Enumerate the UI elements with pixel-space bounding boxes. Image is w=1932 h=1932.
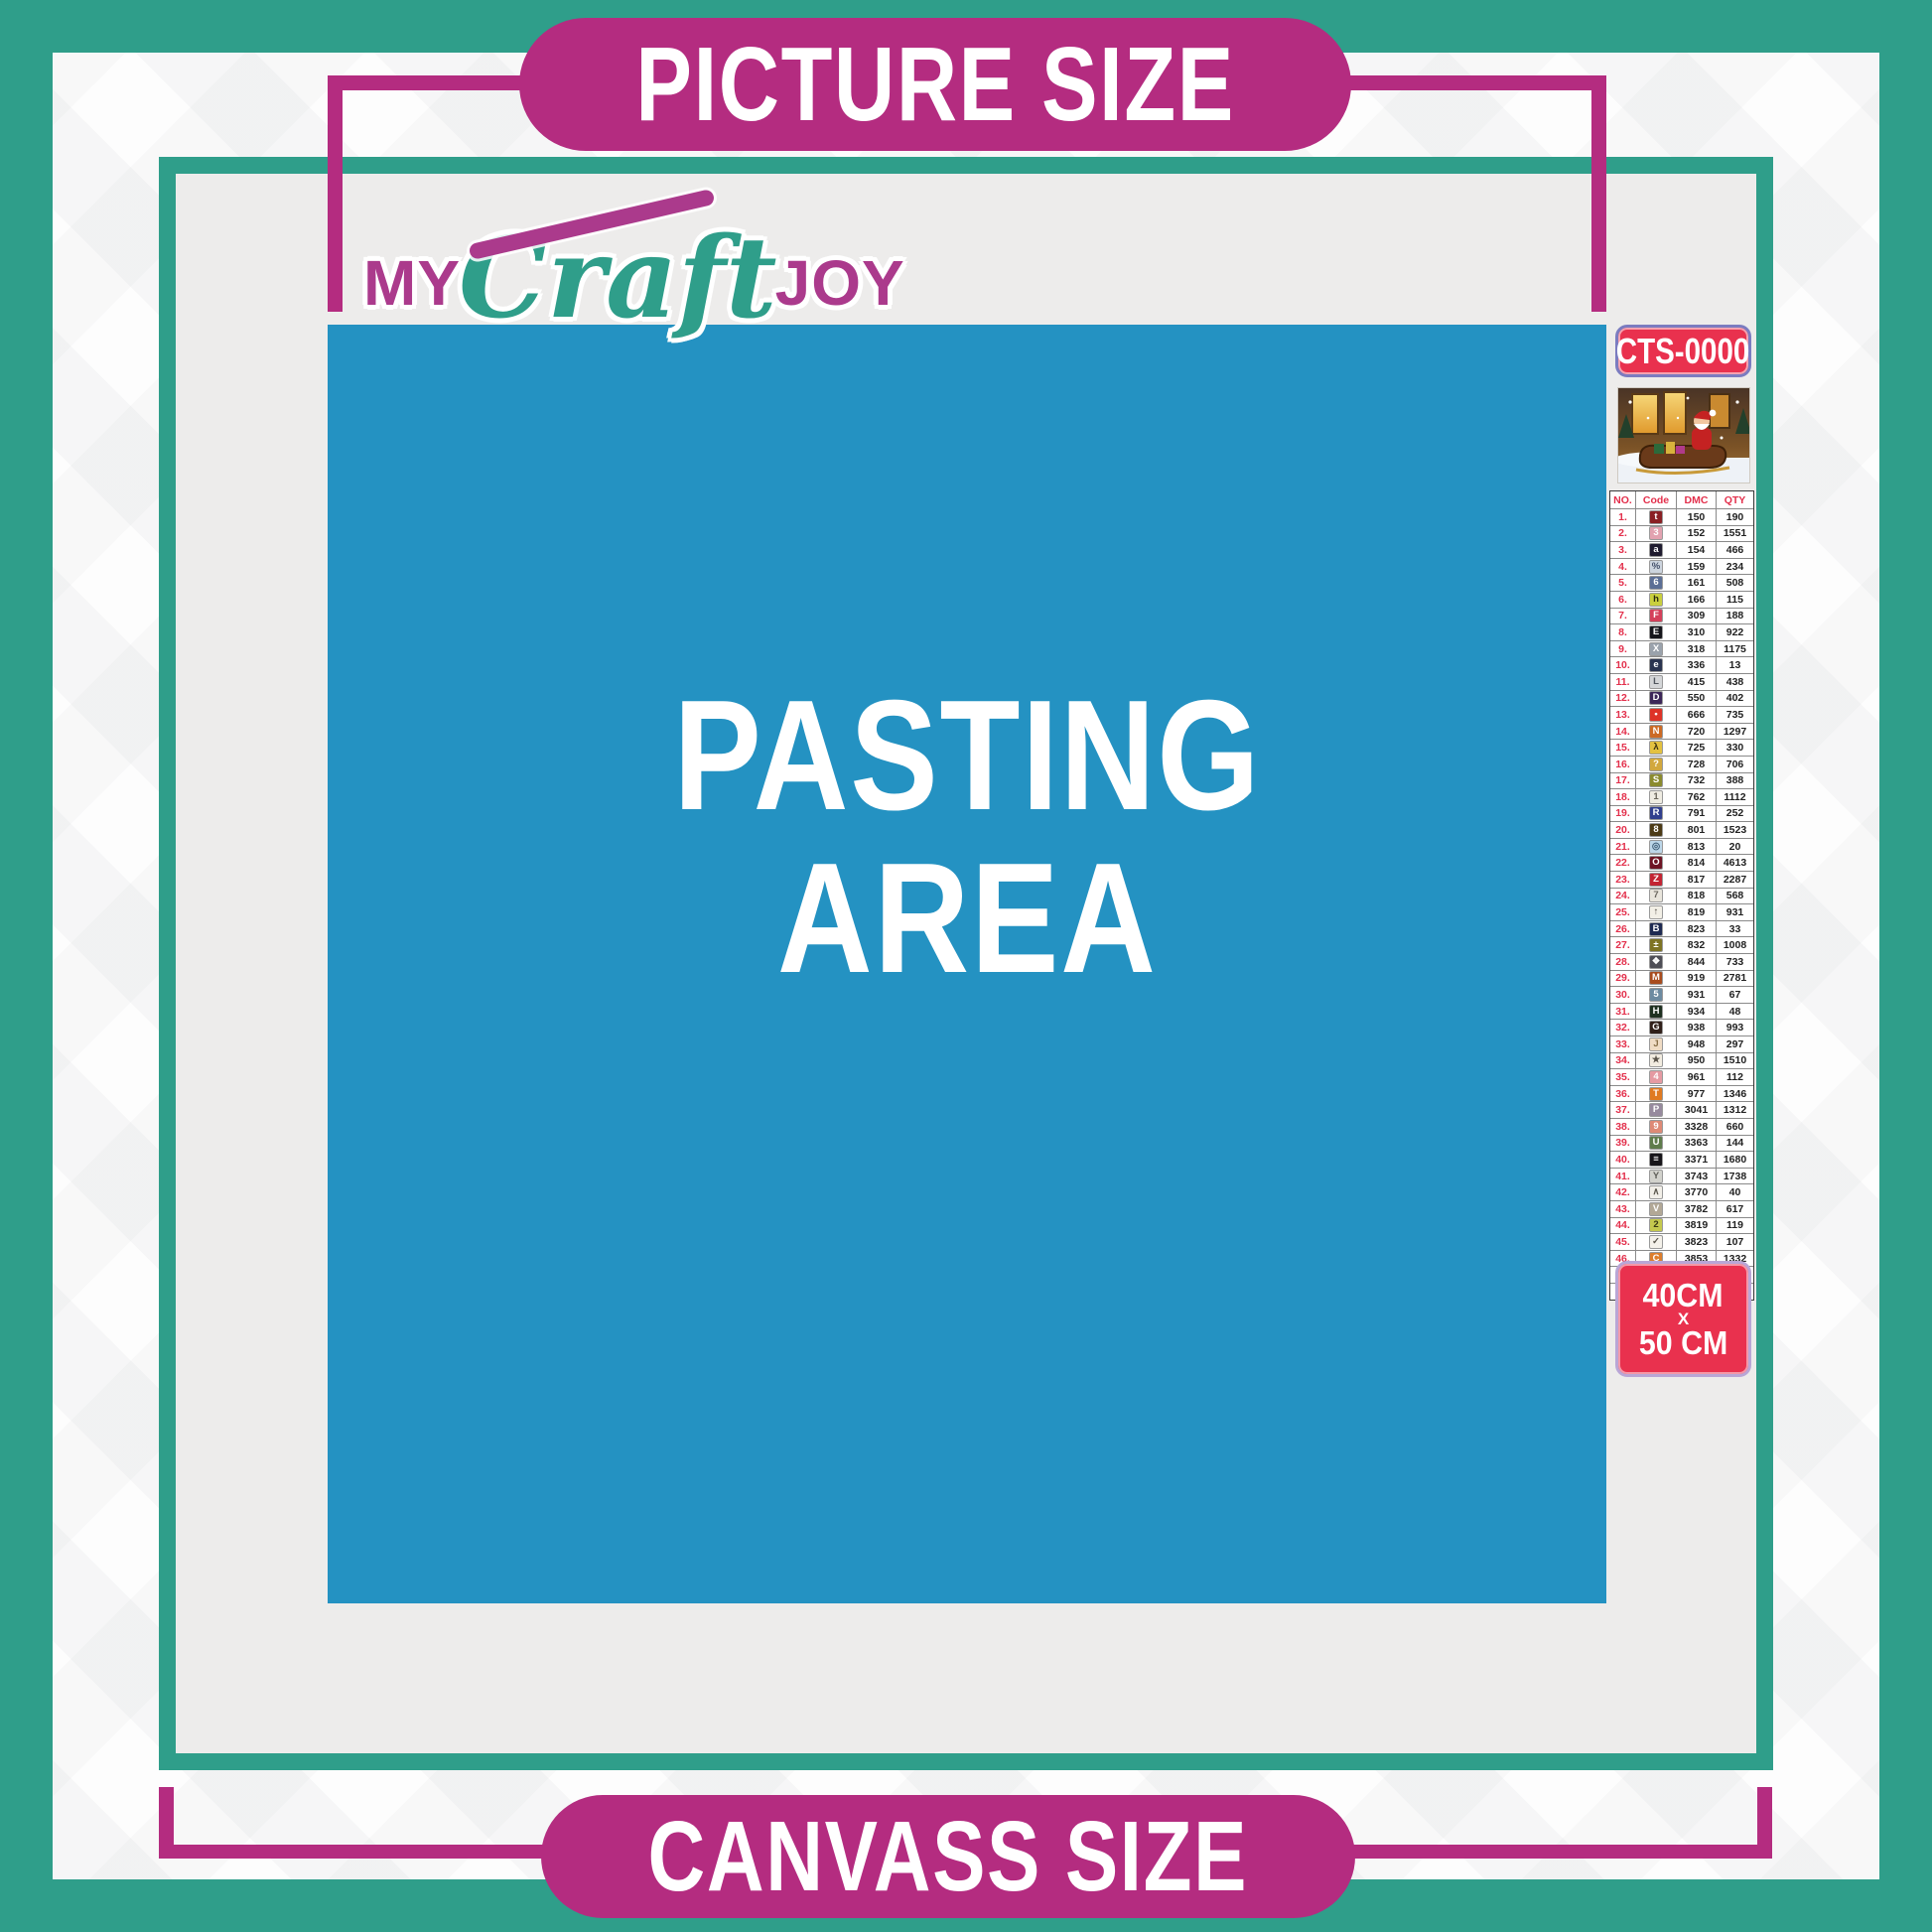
legend-row-45: 45.✓3823107 xyxy=(1610,1233,1753,1250)
legend-row-1: 1.t150190 xyxy=(1610,508,1753,525)
color-chip: ≡ xyxy=(1649,1153,1663,1167)
legend-cell-code: T xyxy=(1636,1086,1677,1102)
legend-cell-code: ↑ xyxy=(1636,904,1677,920)
color-chip: 3 xyxy=(1649,526,1663,540)
legend-cell-no: 36. xyxy=(1610,1086,1636,1102)
color-chip: % xyxy=(1649,560,1663,574)
color-chip: 4 xyxy=(1649,1070,1663,1084)
color-chip: ❖ xyxy=(1649,955,1663,969)
color-chip: X xyxy=(1649,642,1663,656)
legend-cell-dmc: 336 xyxy=(1677,657,1717,673)
legend-cell-no: 25. xyxy=(1610,904,1636,920)
color-chip: 5 xyxy=(1649,988,1663,1002)
color-chip: ✓ xyxy=(1649,1235,1663,1249)
legend-cell-code: 6 xyxy=(1636,575,1677,591)
color-chip: 6 xyxy=(1649,576,1663,590)
legend-row-39: 39.U3363144 xyxy=(1610,1135,1753,1152)
legend-cell-dmc: 948 xyxy=(1677,1036,1717,1052)
legend-cell-dmc: 762 xyxy=(1677,789,1717,805)
legend-row-6: 6.h166115 xyxy=(1610,591,1753,608)
legend-cell-dmc: 725 xyxy=(1677,740,1717,756)
legend-cell-dmc: 817 xyxy=(1677,872,1717,888)
legend-row-21: 21.◎81320 xyxy=(1610,838,1753,855)
legend-cell-no: 24. xyxy=(1610,889,1636,904)
legend-cell-qty: 330 xyxy=(1717,740,1753,756)
legend-row-17: 17.S732388 xyxy=(1610,772,1753,789)
legend-cell-code: S xyxy=(1636,773,1677,789)
legend-cell-no: 41. xyxy=(1610,1169,1636,1184)
color-chip: B xyxy=(1649,922,1663,936)
legend-cell-qty: 112 xyxy=(1717,1069,1753,1085)
size-width: 40CM xyxy=(1643,1280,1724,1311)
legend-row-10: 10.e33613 xyxy=(1610,656,1753,673)
legend-row-42: 42.∧377040 xyxy=(1610,1183,1753,1200)
legend-cell-qty: 119 xyxy=(1717,1218,1753,1234)
legend-header-qty: QTY xyxy=(1717,491,1753,508)
pasting-area-text: PASTING AREA xyxy=(618,674,1317,1001)
pasting-area: PASTING AREA xyxy=(328,325,1606,1603)
legend-cell-code: ✓ xyxy=(1636,1234,1677,1250)
color-chip: ◎ xyxy=(1649,840,1663,854)
legend-cell-code: Z xyxy=(1636,872,1677,888)
legend-cell-dmc: 3819 xyxy=(1677,1218,1717,1234)
legend-cell-qty: 1112 xyxy=(1717,789,1753,805)
legend-cell-qty: 1523 xyxy=(1717,822,1753,838)
legend-cell-no: 7. xyxy=(1610,609,1636,624)
legend-cell-qty: 190 xyxy=(1717,509,1753,525)
legend-row-33: 33.J948297 xyxy=(1610,1035,1753,1052)
legend-cell-dmc: 720 xyxy=(1677,724,1717,740)
legend-cell-code: E xyxy=(1636,624,1677,640)
legend-cell-dmc: 823 xyxy=(1677,921,1717,937)
legend-cell-no: 19. xyxy=(1610,806,1636,822)
color-chip: 7 xyxy=(1649,889,1663,902)
legend-cell-qty: 13 xyxy=(1717,657,1753,673)
legend-cell-no: 1. xyxy=(1610,509,1636,525)
legend-cell-qty: 1312 xyxy=(1717,1102,1753,1118)
legend-cell-code: V xyxy=(1636,1201,1677,1217)
legend-cell-code: 3 xyxy=(1636,526,1677,542)
legend-cell-no: 12. xyxy=(1610,691,1636,707)
legend-header-row: NO. Code DMC QTY xyxy=(1610,491,1753,508)
color-chip: • xyxy=(1649,708,1663,722)
legend-cell-qty: 1297 xyxy=(1717,724,1753,740)
legend-cell-no: 11. xyxy=(1610,674,1636,690)
legend-row-9: 9.X3181175 xyxy=(1610,640,1753,657)
legend-row-28: 28.❖844733 xyxy=(1610,953,1753,970)
legend-cell-dmc: 3328 xyxy=(1677,1119,1717,1135)
legend-cell-dmc: 3782 xyxy=(1677,1201,1717,1217)
color-chip: h xyxy=(1649,593,1663,607)
color-chip: Y xyxy=(1649,1170,1663,1183)
legend-cell-code: 8 xyxy=(1636,822,1677,838)
canvass-size-label: CANVASS SIZE xyxy=(648,1800,1248,1914)
legend-cell-qty: 297 xyxy=(1717,1036,1753,1052)
poster: PASTING AREA PICTURE SIZE CANVASS SIZE M… xyxy=(0,0,1932,1932)
legend-cell-dmc: 310 xyxy=(1677,624,1717,640)
legend-cell-qty: 67 xyxy=(1717,987,1753,1003)
legend-cell-no: 31. xyxy=(1610,1004,1636,1020)
legend-cell-qty: 931 xyxy=(1717,904,1753,920)
legend-cell-dmc: 415 xyxy=(1677,674,1717,690)
picture-size-label: PICTURE SIZE xyxy=(635,25,1234,145)
legend-cell-no: 34. xyxy=(1610,1053,1636,1069)
logo-word-my: MY xyxy=(363,246,461,326)
legend-row-31: 31.H93448 xyxy=(1610,1003,1753,1020)
product-thumbnail xyxy=(1617,387,1750,483)
legend-cell-dmc: 318 xyxy=(1677,641,1717,657)
legend-row-3: 3.a154466 xyxy=(1610,541,1753,558)
legend-cell-no: 4. xyxy=(1610,559,1636,575)
legend-cell-code: F xyxy=(1636,609,1677,624)
legend-cell-no: 20. xyxy=(1610,822,1636,838)
legend-cell-code: ★ xyxy=(1636,1053,1677,1069)
legend-cell-qty: 107 xyxy=(1717,1234,1753,1250)
pasting-line-2: AREA xyxy=(673,837,1261,1000)
legend-cell-dmc: 919 xyxy=(1677,971,1717,987)
legend-cell-code: ± xyxy=(1636,937,1677,953)
color-chip: e xyxy=(1649,658,1663,672)
legend-row-2: 2.31521551 xyxy=(1610,525,1753,542)
legend-row-41: 41.Y37431738 xyxy=(1610,1168,1753,1184)
color-chip: ? xyxy=(1649,758,1663,771)
legend-cell-dmc: 152 xyxy=(1677,526,1717,542)
legend-cell-dmc: 818 xyxy=(1677,889,1717,904)
legend-cell-dmc: 934 xyxy=(1677,1004,1717,1020)
legend-row-30: 30.593167 xyxy=(1610,986,1753,1003)
legend-row-37: 37.P30411312 xyxy=(1610,1101,1753,1118)
legend-cell-code: U xyxy=(1636,1136,1677,1152)
legend-cell-no: 6. xyxy=(1610,592,1636,608)
legend-cell-qty: 252 xyxy=(1717,806,1753,822)
legend-cell-no: 26. xyxy=(1610,921,1636,937)
legend-cell-no: 18. xyxy=(1610,789,1636,805)
legend-row-8: 8.E310922 xyxy=(1610,623,1753,640)
sku-badge: CTS-0000 xyxy=(1615,325,1751,377)
legend-cell-code: X xyxy=(1636,641,1677,657)
legend-cell-qty: 388 xyxy=(1717,773,1753,789)
legend-cell-code: 4 xyxy=(1636,1069,1677,1085)
legend-row-22: 22.O8144613 xyxy=(1610,854,1753,871)
legend-row-7: 7.F309188 xyxy=(1610,608,1753,624)
legend-cell-dmc: 159 xyxy=(1677,559,1717,575)
legend-row-11: 11.L415438 xyxy=(1610,673,1753,690)
legend-cell-code: G xyxy=(1636,1020,1677,1035)
legend-cell-no: 9. xyxy=(1610,641,1636,657)
legend-cell-qty: 660 xyxy=(1717,1119,1753,1135)
legend-cell-dmc: 309 xyxy=(1677,609,1717,624)
legend-cell-code: λ xyxy=(1636,740,1677,756)
legend-cell-no: 14. xyxy=(1610,724,1636,740)
legend-cell-code: 1 xyxy=(1636,789,1677,805)
legend-row-13: 13.•666735 xyxy=(1610,706,1753,723)
legend-cell-no: 21. xyxy=(1610,839,1636,855)
legend-cell-qty: 33 xyxy=(1717,921,1753,937)
color-chip: H xyxy=(1649,1005,1663,1019)
legend-cell-dmc: 550 xyxy=(1677,691,1717,707)
legend-cell-qty: 20 xyxy=(1717,839,1753,855)
color-legend-table: NO. Code DMC QTY 1.t1501902.315215513.a1… xyxy=(1609,490,1754,1301)
legend-row-20: 20.88011523 xyxy=(1610,821,1753,838)
legend-cell-no: 33. xyxy=(1610,1036,1636,1052)
legend-header-dmc: DMC xyxy=(1677,491,1717,508)
size-badge: 40CM X 50 CM xyxy=(1615,1261,1751,1377)
legend-cell-code: H xyxy=(1636,1004,1677,1020)
legend-cell-no: 43. xyxy=(1610,1201,1636,1217)
legend-row-4: 4.%159234 xyxy=(1610,558,1753,575)
legend-cell-code: B xyxy=(1636,921,1677,937)
legend-cell-dmc: 150 xyxy=(1677,509,1717,525)
legend-cell-dmc: 3743 xyxy=(1677,1169,1717,1184)
legend-cell-no: 37. xyxy=(1610,1102,1636,1118)
legend-cell-dmc: 154 xyxy=(1677,542,1717,558)
legend-row-44: 44.23819119 xyxy=(1610,1217,1753,1234)
legend-cell-code: 7 xyxy=(1636,889,1677,904)
color-chip: S xyxy=(1649,773,1663,787)
legend-cell-qty: 706 xyxy=(1717,757,1753,772)
legend-cell-no: 27. xyxy=(1610,937,1636,953)
canvass-frame-right-stub xyxy=(1757,1787,1772,1859)
legend-cell-dmc: 844 xyxy=(1677,954,1717,970)
legend-row-24: 24.7818568 xyxy=(1610,888,1753,904)
legend-cell-dmc: 819 xyxy=(1677,904,1717,920)
legend-cell-qty: 1346 xyxy=(1717,1086,1753,1102)
color-chip: ↑ xyxy=(1649,905,1663,919)
legend-cell-dmc: 3371 xyxy=(1677,1152,1717,1168)
legend-cell-dmc: 961 xyxy=(1677,1069,1717,1085)
legend-cell-qty: 1008 xyxy=(1717,937,1753,953)
legend-cell-qty: 438 xyxy=(1717,674,1753,690)
legend-cell-code: ❖ xyxy=(1636,954,1677,970)
legend-cell-code: O xyxy=(1636,855,1677,871)
legend-cell-dmc: 3823 xyxy=(1677,1234,1717,1250)
legend-cell-qty: 1510 xyxy=(1717,1053,1753,1069)
legend-row-5: 5.6161508 xyxy=(1610,574,1753,591)
color-chip: U xyxy=(1649,1136,1663,1150)
legend-cell-no: 45. xyxy=(1610,1234,1636,1250)
color-chip: T xyxy=(1649,1087,1663,1101)
legend-cell-qty: 508 xyxy=(1717,575,1753,591)
legend-cell-dmc: 728 xyxy=(1677,757,1717,772)
legend-header-code: Code xyxy=(1636,491,1677,508)
picture-frame-right-line xyxy=(1591,75,1606,312)
legend-cell-qty: 1738 xyxy=(1717,1169,1753,1184)
color-chip: D xyxy=(1649,691,1663,705)
legend-cell-qty: 4613 xyxy=(1717,855,1753,871)
legend-cell-qty: 1551 xyxy=(1717,526,1753,542)
picture-size-banner: PICTURE SIZE xyxy=(519,18,1351,151)
christmas-scene-illustration xyxy=(1618,388,1750,483)
color-chip: L xyxy=(1649,675,1663,689)
color-chip: M xyxy=(1649,971,1663,985)
legend-cell-dmc: 3770 xyxy=(1677,1184,1717,1200)
legend-cell-code: t xyxy=(1636,509,1677,525)
legend-cell-no: 8. xyxy=(1610,624,1636,640)
legend-row-27: 27.±8321008 xyxy=(1610,936,1753,953)
pasting-line-1: PASTING xyxy=(673,674,1261,837)
legend-cell-code: ≡ xyxy=(1636,1152,1677,1168)
legend-cell-code: ◎ xyxy=(1636,839,1677,855)
legend-cell-code: 2 xyxy=(1636,1218,1677,1234)
legend-cell-qty: 1680 xyxy=(1717,1152,1753,1168)
legend-cell-no: 17. xyxy=(1610,773,1636,789)
legend-cell-qty: 2287 xyxy=(1717,872,1753,888)
legend-row-16: 16.?728706 xyxy=(1610,756,1753,772)
legend-cell-no: 16. xyxy=(1610,757,1636,772)
legend-cell-no: 32. xyxy=(1610,1020,1636,1035)
legend-cell-dmc: 931 xyxy=(1677,987,1717,1003)
sku-code: CTS-0000 xyxy=(1616,331,1750,372)
color-chip: ★ xyxy=(1649,1053,1663,1067)
legend-cell-dmc: 832 xyxy=(1677,937,1717,953)
legend-cell-dmc: 3363 xyxy=(1677,1136,1717,1152)
legend-row-34: 34.★9501510 xyxy=(1610,1052,1753,1069)
color-chip: V xyxy=(1649,1202,1663,1216)
legend-row-35: 35.4961112 xyxy=(1610,1068,1753,1085)
legend-cell-no: 30. xyxy=(1610,987,1636,1003)
legend-row-43: 43.V3782617 xyxy=(1610,1200,1753,1217)
legend-cell-no: 22. xyxy=(1610,855,1636,871)
legend-cell-qty: 402 xyxy=(1717,691,1753,707)
color-chip: 1 xyxy=(1649,790,1663,804)
color-chip: 2 xyxy=(1649,1218,1663,1232)
canvass-frame-left-stub xyxy=(159,1787,174,1859)
legend-cell-code: ∧ xyxy=(1636,1184,1677,1200)
canvass-size-banner: CANVASS SIZE xyxy=(541,1795,1355,1918)
legend-cell-qty: 993 xyxy=(1717,1020,1753,1035)
legend-row-19: 19.R791252 xyxy=(1610,805,1753,822)
color-chip: E xyxy=(1649,625,1663,639)
legend-cell-qty: 1175 xyxy=(1717,641,1753,657)
legend-cell-qty: 466 xyxy=(1717,542,1753,558)
color-chip: G xyxy=(1649,1021,1663,1035)
legend-header-no: NO. xyxy=(1610,491,1636,508)
legend-cell-dmc: 813 xyxy=(1677,839,1717,855)
legend-row-26: 26.B82333 xyxy=(1610,920,1753,937)
color-chip: F xyxy=(1649,609,1663,622)
legend-row-14: 14.N7201297 xyxy=(1610,723,1753,740)
legend-cell-dmc: 938 xyxy=(1677,1020,1717,1035)
legend-cell-no: 10. xyxy=(1610,657,1636,673)
legend-cell-code: N xyxy=(1636,724,1677,740)
legend-cell-qty: 568 xyxy=(1717,889,1753,904)
legend-row-23: 23.Z8172287 xyxy=(1610,871,1753,888)
color-chip: J xyxy=(1649,1037,1663,1051)
legend-cell-code: 5 xyxy=(1636,987,1677,1003)
color-chip: a xyxy=(1649,543,1663,557)
legend-cell-code: L xyxy=(1636,674,1677,690)
legend-row-36: 36.T9771346 xyxy=(1610,1085,1753,1102)
legend-row-18: 18.17621112 xyxy=(1610,788,1753,805)
legend-row-12: 12.D550402 xyxy=(1610,690,1753,707)
legend-cell-no: 15. xyxy=(1610,740,1636,756)
legend-cell-qty: 48 xyxy=(1717,1004,1753,1020)
legend-cell-qty: 733 xyxy=(1717,954,1753,970)
legend-cell-qty: 922 xyxy=(1717,624,1753,640)
legend-cell-code: a xyxy=(1636,542,1677,558)
legend-cell-qty: 617 xyxy=(1717,1201,1753,1217)
logo-word-joy: JOY xyxy=(775,246,905,326)
color-chip: ∧ xyxy=(1649,1185,1663,1199)
legend-cell-code: h xyxy=(1636,592,1677,608)
color-chip: R xyxy=(1649,806,1663,820)
legend-cell-code: M xyxy=(1636,971,1677,987)
legend-row-25: 25.↑819931 xyxy=(1610,903,1753,920)
legend-cell-no: 28. xyxy=(1610,954,1636,970)
color-chip: O xyxy=(1649,856,1663,870)
legend-cell-code: J xyxy=(1636,1036,1677,1052)
legend-cell-code: 9 xyxy=(1636,1119,1677,1135)
legend-cell-code: R xyxy=(1636,806,1677,822)
legend-cell-no: 5. xyxy=(1610,575,1636,591)
legend-cell-dmc: 3041 xyxy=(1677,1102,1717,1118)
brand-logo: MY Craft JOY xyxy=(363,187,905,326)
legend-cell-code: • xyxy=(1636,707,1677,723)
legend-cell-qty: 144 xyxy=(1717,1136,1753,1152)
legend-cell-no: 29. xyxy=(1610,971,1636,987)
legend-cell-dmc: 161 xyxy=(1677,575,1717,591)
color-chip: ± xyxy=(1649,938,1663,952)
legend-cell-no: 39. xyxy=(1610,1136,1636,1152)
legend-row-40: 40.≡33711680 xyxy=(1610,1151,1753,1168)
color-chip: t xyxy=(1649,510,1663,524)
legend-cell-no: 3. xyxy=(1610,542,1636,558)
size-height: 50 CM xyxy=(1639,1327,1727,1358)
color-chip: N xyxy=(1649,725,1663,739)
legend-row-32: 32.G938993 xyxy=(1610,1019,1753,1035)
color-chip: Z xyxy=(1649,873,1663,887)
legend-cell-dmc: 801 xyxy=(1677,822,1717,838)
color-chip: 9 xyxy=(1649,1120,1663,1134)
legend-cell-no: 2. xyxy=(1610,526,1636,542)
legend-cell-dmc: 814 xyxy=(1677,855,1717,871)
legend-cell-no: 38. xyxy=(1610,1119,1636,1135)
legend-cell-qty: 188 xyxy=(1717,609,1753,624)
color-chip: λ xyxy=(1649,741,1663,755)
legend-cell-qty: 234 xyxy=(1717,559,1753,575)
legend-cell-code: P xyxy=(1636,1102,1677,1118)
legend-cell-dmc: 732 xyxy=(1677,773,1717,789)
legend-cell-code: e xyxy=(1636,657,1677,673)
legend-cell-qty: 2781 xyxy=(1717,971,1753,987)
legend-cell-dmc: 666 xyxy=(1677,707,1717,723)
legend-cell-no: 23. xyxy=(1610,872,1636,888)
legend-cell-dmc: 791 xyxy=(1677,806,1717,822)
legend-row-15: 15.λ725330 xyxy=(1610,739,1753,756)
legend-row-29: 29.M9192781 xyxy=(1610,970,1753,987)
legend-cell-no: 13. xyxy=(1610,707,1636,723)
picture-frame-left-line xyxy=(328,75,343,312)
legend-cell-qty: 40 xyxy=(1717,1184,1753,1200)
legend-cell-dmc: 166 xyxy=(1677,592,1717,608)
legend-cell-no: 42. xyxy=(1610,1184,1636,1200)
legend-cell-no: 40. xyxy=(1610,1152,1636,1168)
legend-cell-qty: 735 xyxy=(1717,707,1753,723)
legend-rows: 1.t1501902.315215513.a1544664.%1592345.6… xyxy=(1610,508,1753,1300)
legend-cell-code: ? xyxy=(1636,757,1677,772)
legend-cell-no: 44. xyxy=(1610,1218,1636,1234)
legend-cell-dmc: 977 xyxy=(1677,1086,1717,1102)
color-chip: 8 xyxy=(1649,823,1663,837)
legend-cell-code: Y xyxy=(1636,1169,1677,1184)
legend-cell-dmc: 950 xyxy=(1677,1053,1717,1069)
legend-row-38: 38.93328660 xyxy=(1610,1118,1753,1135)
legend-cell-code: % xyxy=(1636,559,1677,575)
legend-cell-code: D xyxy=(1636,691,1677,707)
legend-cell-no: 35. xyxy=(1610,1069,1636,1085)
legend-cell-qty: 115 xyxy=(1717,592,1753,608)
color-chip: P xyxy=(1649,1103,1663,1117)
